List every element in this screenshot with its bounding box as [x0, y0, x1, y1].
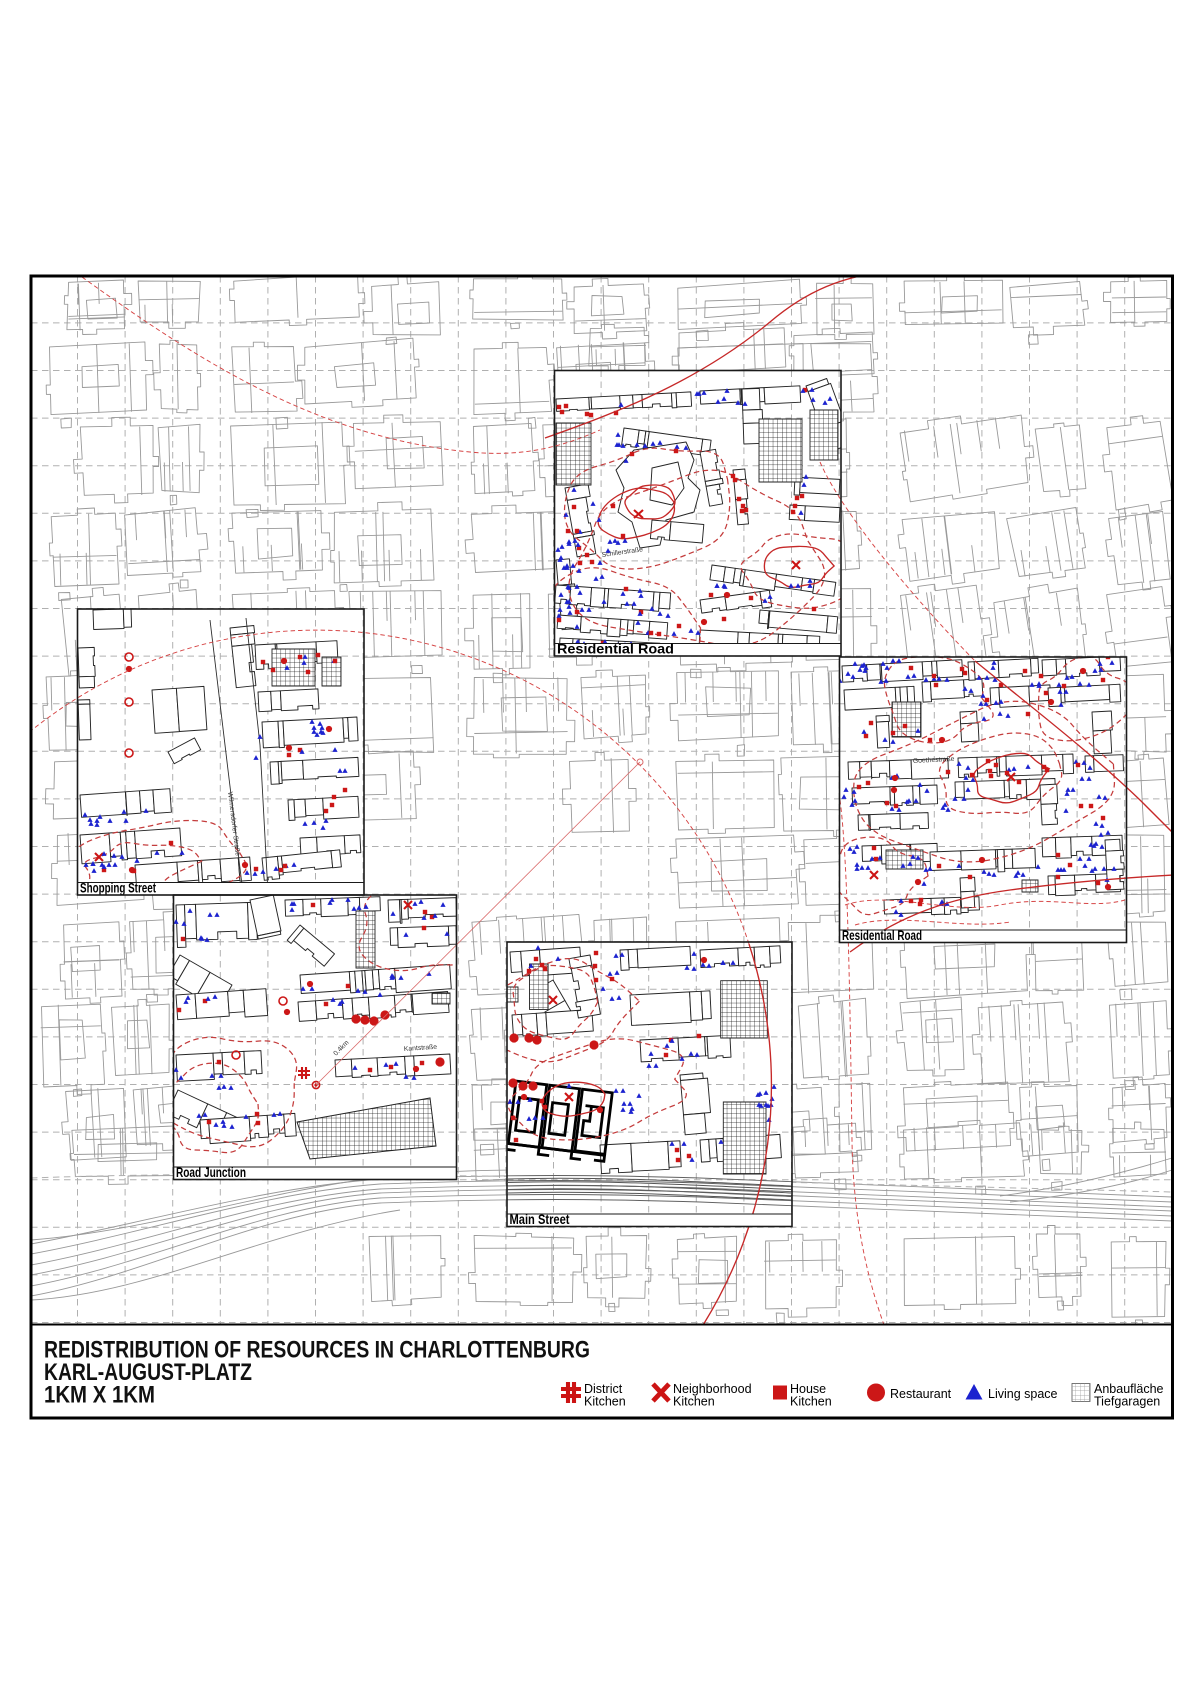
svg-text:Road Junction: Road Junction	[176, 1165, 246, 1180]
svg-text:Restaurant: Restaurant	[890, 1387, 952, 1401]
svg-text:Residential Road: Residential Road	[557, 642, 674, 657]
svg-text:Kitchen: Kitchen	[790, 1395, 832, 1409]
svg-text:Living space: Living space	[988, 1387, 1058, 1401]
svg-text:Kitchen: Kitchen	[673, 1395, 715, 1409]
svg-text:Tiefgaragen: Tiefgaragen	[1094, 1395, 1160, 1409]
svg-text:Shopping Street: Shopping Street	[80, 881, 156, 896]
svg-text:Residential Road: Residential Road	[842, 928, 922, 943]
svg-text:Main Street: Main Street	[510, 1212, 570, 1227]
svg-text:Kitchen: Kitchen	[584, 1395, 626, 1409]
svg-text:1KM X 1KM: 1KM X 1KM	[44, 1382, 155, 1409]
